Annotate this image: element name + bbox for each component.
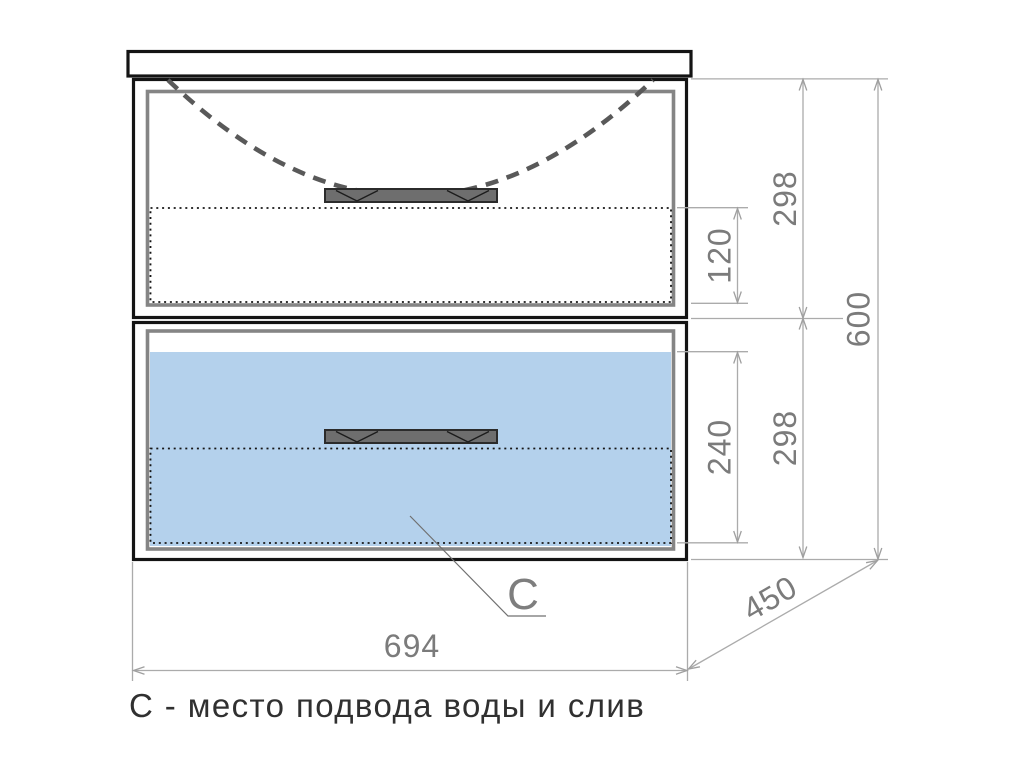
dim-label-top-drawer-height: 298 [767, 170, 803, 226]
dim-label-overall-width: 694 [384, 628, 440, 664]
leader-label: C [507, 570, 539, 619]
technical-drawing-page: C 120 298 240 [0, 0, 1024, 768]
dim-label-bottom-drawer-height: 298 [767, 410, 803, 466]
dim-label-overall-height: 600 [841, 291, 877, 347]
bottom-drawer-handle [325, 430, 497, 443]
countertop [128, 52, 691, 77]
cabinet-body [128, 52, 691, 560]
top-drawer-handle [325, 189, 497, 202]
dim-label-overall-depth: 450 [737, 568, 804, 627]
dim-label-top-drawer-inset: 120 [702, 227, 738, 283]
drawing-caption: С - место подвода воды и слив [129, 687, 645, 724]
vanity-cabinet-dimension-drawing: C 120 298 240 [0, 0, 1024, 768]
dim-label-bottom-drawer-inset: 240 [702, 419, 738, 475]
